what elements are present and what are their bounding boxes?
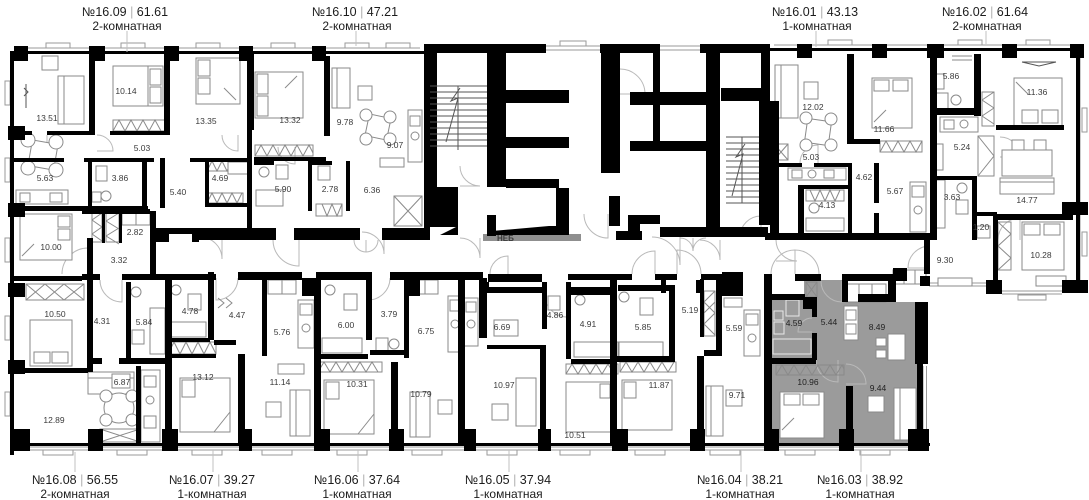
svg-text:8.49: 8.49: [869, 322, 886, 332]
svg-text:№16.08 | 56.55: №16.08 | 56.55: [32, 473, 118, 487]
svg-text:1-комнатная: 1-комнатная: [825, 487, 894, 500]
svg-text:№16.06 | 37.64: №16.06 | 37.64: [314, 473, 400, 487]
svg-text:12.89: 12.89: [43, 415, 65, 425]
svg-text:6.87: 6.87: [114, 377, 131, 387]
svg-text:4.78: 4.78: [182, 306, 199, 316]
svg-text:11.36: 11.36: [1027, 87, 1048, 97]
svg-text:10.79: 10.79: [410, 389, 432, 399]
svg-text:4.13: 4.13: [819, 200, 836, 210]
svg-text:3.63: 3.63: [944, 192, 961, 202]
svg-text:6.69: 6.69: [494, 322, 511, 332]
svg-text:№16.05 | 37.94: №16.05 | 37.94: [465, 473, 551, 487]
svg-text:5.19: 5.19: [682, 305, 699, 315]
svg-text:2-комнатная: 2-комнатная: [92, 19, 161, 33]
svg-text:№16.02 | 61.64: №16.02 | 61.64: [942, 5, 1028, 19]
svg-text:10.31: 10.31: [346, 379, 368, 389]
svg-text:5.59: 5.59: [726, 323, 743, 333]
svg-text:9.78: 9.78: [337, 117, 354, 127]
svg-text:13.35: 13.35: [195, 116, 217, 126]
svg-text:9.30: 9.30: [937, 255, 954, 265]
svg-text:10.28: 10.28: [1030, 250, 1052, 260]
svg-text:5.03: 5.03: [803, 152, 820, 162]
svg-text:3.32: 3.32: [111, 255, 128, 265]
svg-text:№16.09 | 61.61: №16.09 | 61.61: [82, 5, 168, 19]
svg-text:1.20: 1.20: [973, 222, 990, 232]
svg-text:5.84: 5.84: [136, 317, 153, 327]
svg-text:№16.04 | 38.21: №16.04 | 38.21: [697, 473, 783, 487]
svg-text:4.62: 4.62: [856, 172, 873, 182]
svg-text:№16.01 | 43.13: №16.01 | 43.13: [772, 5, 858, 19]
svg-text:6.75: 6.75: [418, 326, 435, 336]
svg-text:4.31: 4.31: [94, 316, 111, 326]
svg-text:13.32: 13.32: [279, 115, 301, 125]
svg-text:1-комнатная: 1-комнатная: [322, 487, 391, 500]
svg-text:5.63: 5.63: [37, 173, 54, 183]
svg-text:2-комнатная: 2-комнатная: [952, 19, 1021, 33]
svg-text:5.67: 5.67: [887, 186, 904, 196]
svg-text:11.87: 11.87: [649, 380, 670, 390]
svg-text:4.47: 4.47: [229, 310, 246, 320]
svg-text:10.96: 10.96: [797, 377, 819, 387]
svg-text:№16.03 | 38.92: №16.03 | 38.92: [817, 473, 903, 487]
svg-text:13.51: 13.51: [36, 113, 58, 123]
svg-text:2-комнатная: 2-комнатная: [322, 19, 391, 33]
svg-text:5.85: 5.85: [635, 322, 652, 332]
svg-text:4.69: 4.69: [212, 173, 229, 183]
svg-text:4.59: 4.59: [786, 318, 803, 328]
svg-text:1-комнатная: 1-комнатная: [473, 487, 542, 500]
svg-text:3.86: 3.86: [112, 173, 129, 183]
svg-text:4.86: 4.86: [547, 310, 564, 320]
svg-text:10.50: 10.50: [44, 309, 66, 319]
svg-text:9.44: 9.44: [870, 383, 887, 393]
svg-text:1-комнатная: 1-комнатная: [705, 487, 774, 500]
svg-text:11.66: 11.66: [874, 124, 895, 134]
svg-text:10.00: 10.00: [40, 242, 62, 252]
svg-text:5.86: 5.86: [943, 71, 960, 81]
svg-text:2.82: 2.82: [127, 227, 144, 237]
svg-text:10.51: 10.51: [564, 430, 586, 440]
svg-text:5.76: 5.76: [274, 327, 291, 337]
svg-text:13.12: 13.12: [192, 372, 214, 382]
svg-text:1-комнатная: 1-комнатная: [782, 19, 851, 33]
svg-text:5.44: 5.44: [821, 317, 838, 327]
svg-text:5.03: 5.03: [134, 143, 151, 153]
svg-text:1-комнатная: 1-комнатная: [177, 487, 246, 500]
svg-text:10.14: 10.14: [115, 86, 137, 96]
svg-text:6.00: 6.00: [338, 320, 355, 330]
svg-text:6.36: 6.36: [364, 185, 381, 195]
svg-text:12.02: 12.02: [802, 102, 824, 112]
svg-text:5.40: 5.40: [170, 187, 187, 197]
svg-text:4.91: 4.91: [580, 319, 597, 329]
svg-text:5.24: 5.24: [954, 142, 971, 152]
svg-text:3.79: 3.79: [381, 309, 398, 319]
svg-text:9.71: 9.71: [729, 390, 746, 400]
svg-text:НЕБ: НЕБ: [497, 234, 514, 243]
svg-text:10.97: 10.97: [493, 380, 515, 390]
svg-text:№16.10 | 47.21: №16.10 | 47.21: [312, 5, 398, 19]
svg-text:2.78: 2.78: [322, 184, 339, 194]
svg-text:№16.07 | 39.27: №16.07 | 39.27: [169, 473, 255, 487]
svg-text:14.77: 14.77: [1016, 195, 1038, 205]
svg-text:5.90: 5.90: [275, 184, 292, 194]
svg-text:2-комнатная: 2-комнатная: [40, 487, 109, 500]
svg-text:11.14: 11.14: [270, 377, 291, 387]
svg-text:9.07: 9.07: [387, 140, 404, 150]
